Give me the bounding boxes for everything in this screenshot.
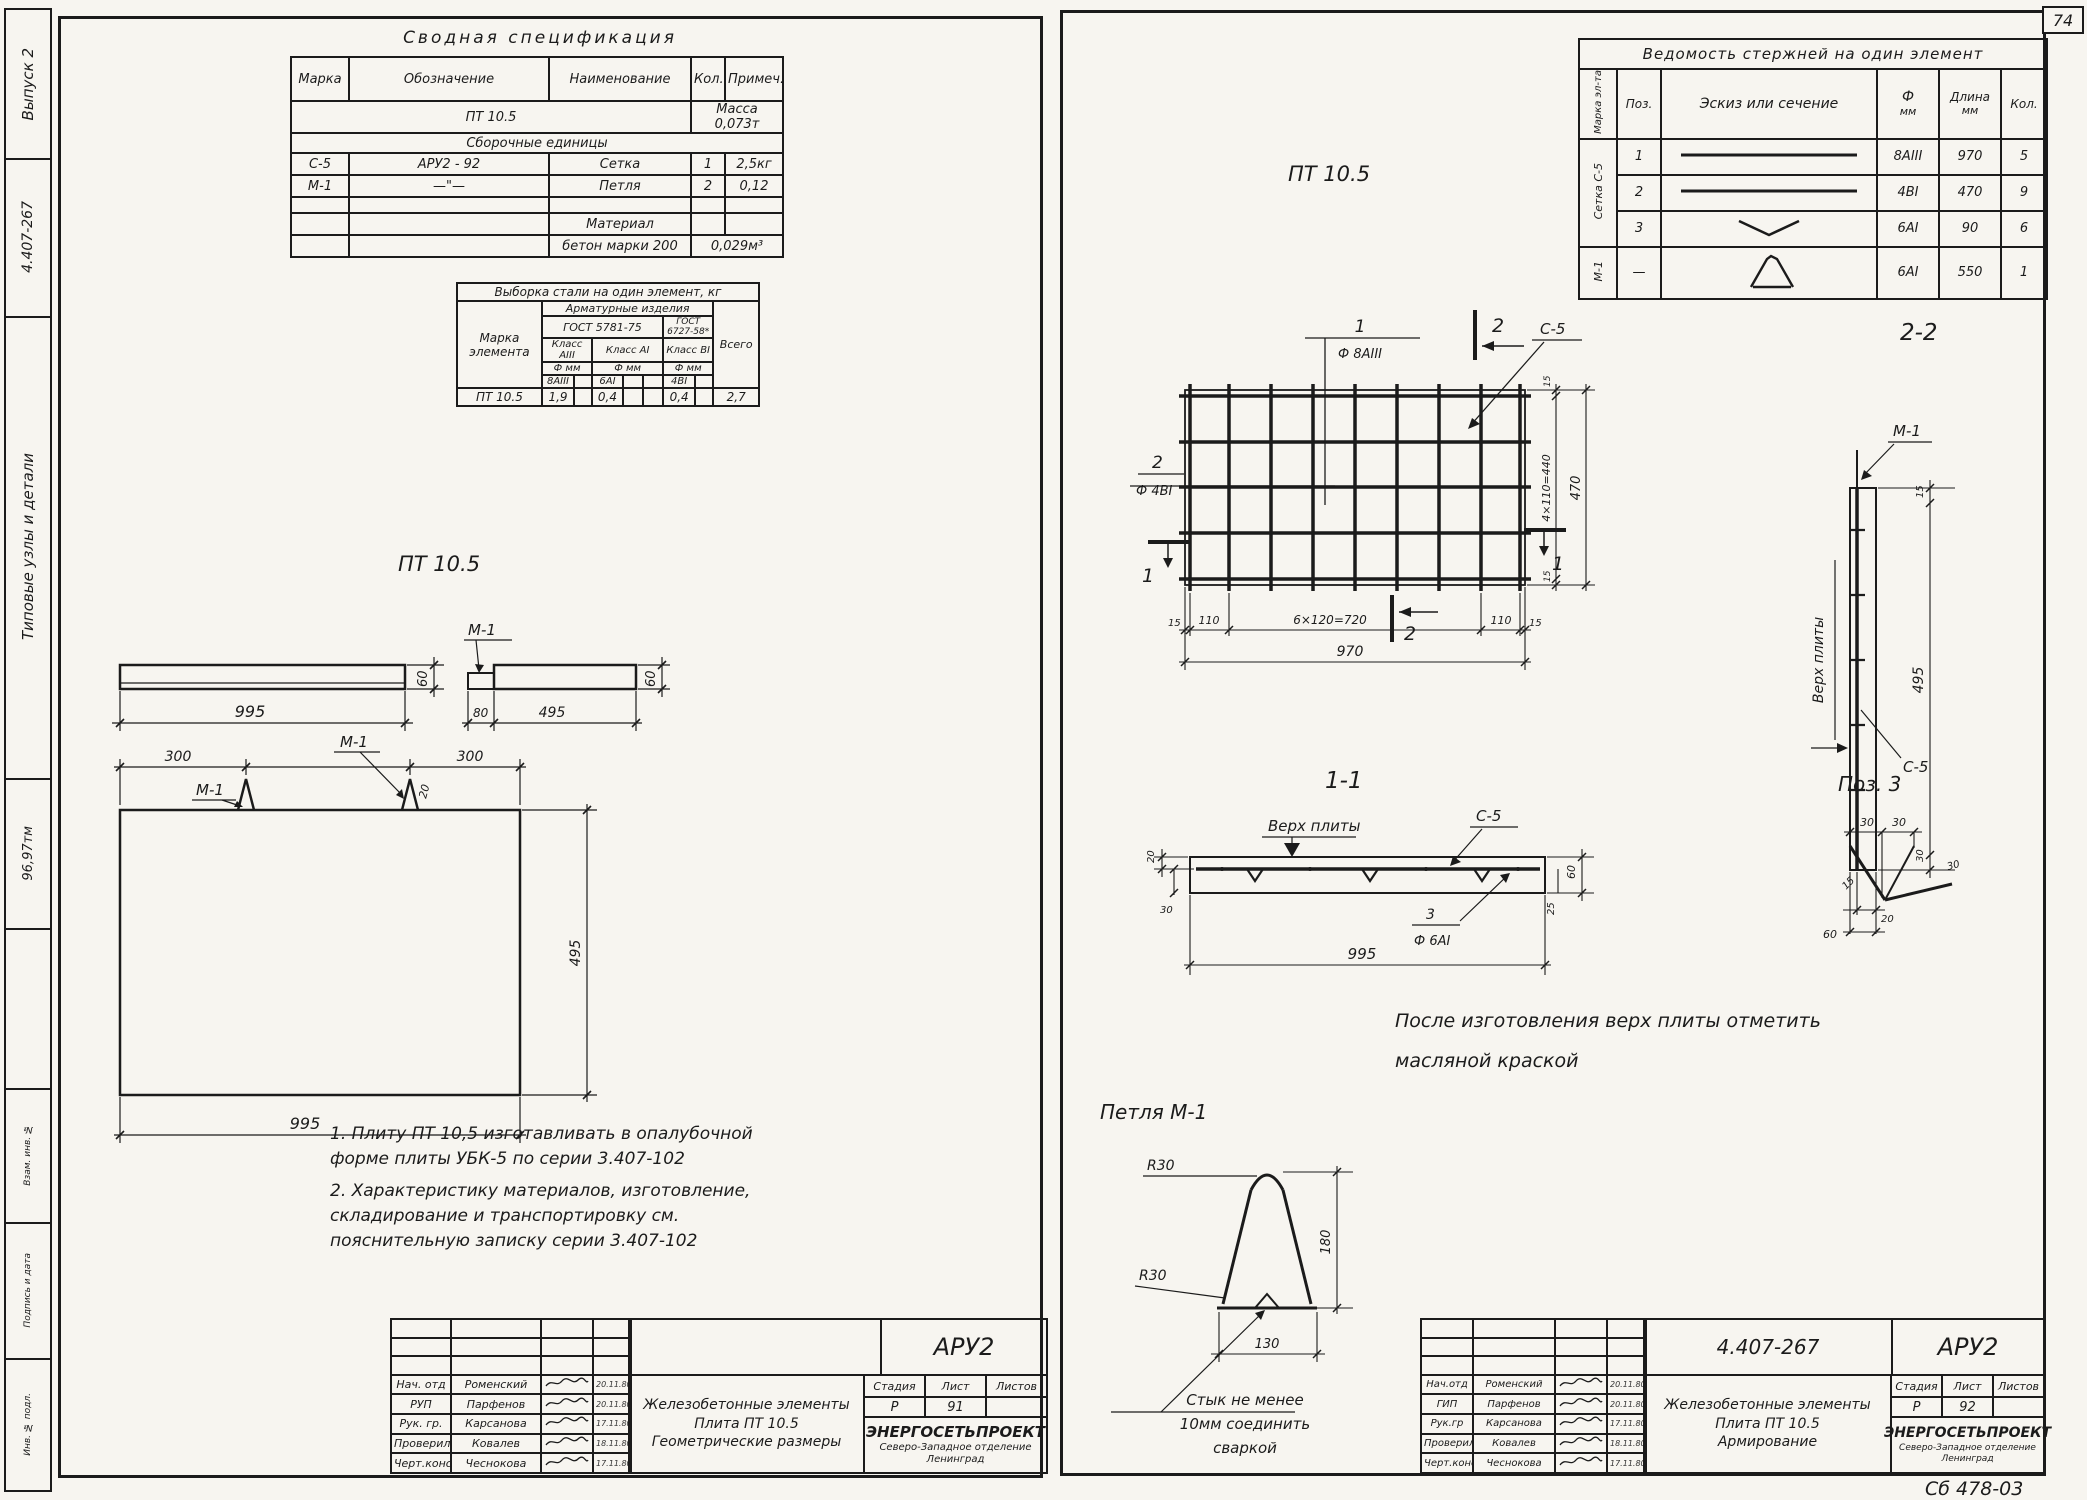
page-number: 74: [2053, 11, 2073, 30]
dim-label: 60: [416, 670, 431, 687]
weld-note-line-3: сваркой: [1125, 1436, 1365, 1460]
section-mark: 1: [1552, 553, 1564, 575]
notes: 1. Плиту ПТ 10,5 изготавливать в опалубо…: [330, 1122, 800, 1253]
staff-table: Нач.отдРоменский20.11.80 ГИППарфенов20.1…: [1420, 1318, 1647, 1474]
steel-gost: ГОСТ 5781-75: [542, 316, 663, 338]
title-line-2: Плита ПТ 10.5: [1715, 1415, 1819, 1434]
spec-header: Кол.: [691, 57, 725, 101]
steel-total-header: Всего: [713, 301, 759, 388]
sheet-value: 92: [1941, 1396, 1994, 1418]
dim-label: 130: [1255, 1337, 1280, 1352]
org-branch: Северо-Западное отделение: [879, 1442, 1031, 1455]
dim-label: 60: [644, 670, 659, 687]
dim-label: 30: [1860, 816, 1874, 829]
rods-qty: 6: [2001, 211, 2047, 247]
date: 17.11.80: [1607, 1414, 1646, 1434]
rod-sketch-line: [1661, 139, 1877, 175]
sheet-value: 91: [924, 1396, 987, 1418]
name: Ковалев: [451, 1434, 541, 1454]
top-of-slab-label: Верх плиты: [1268, 817, 1361, 835]
name: Карсанова: [451, 1414, 541, 1434]
spec-cell: АРУ2 - 92: [349, 153, 549, 175]
margin-issue: Выпуск 2: [19, 48, 37, 120]
radius-label: R30: [1147, 1158, 1175, 1174]
date: 17.11.80: [1607, 1453, 1646, 1473]
weld-note: Стык не менее 10мм соединить сваркой: [1125, 1388, 1365, 1460]
section-2-2-heading: 2-2: [1900, 320, 1938, 346]
loop-ref-label: М-1: [468, 621, 496, 639]
steel-dia: 6АI: [592, 375, 622, 388]
dim-label: 30: [1892, 816, 1906, 829]
weld-note-line-1: Стык не менее: [1125, 1388, 1365, 1412]
pos-label: 3: [1426, 907, 1435, 923]
spec-table-title: Сводная спецификация: [300, 28, 780, 48]
dim-label: 15: [1529, 618, 1542, 629]
rods-len: 970: [1939, 139, 2001, 175]
org-name: ЭНЕРГОСЕТЬПРОЕКТ: [1884, 1425, 2051, 1443]
dim-label: 6×120=720: [1293, 613, 1367, 627]
role: ГИП: [1421, 1394, 1473, 1414]
spec-cell: 1: [691, 153, 725, 175]
org-cell: ЭНЕРГОСЕТЬПРОЕКТ Северо-Западное отделен…: [863, 1416, 1048, 1474]
margin-title: Типовые узлы и детали: [19, 453, 37, 640]
role: Рук.гр: [1421, 1414, 1473, 1434]
dim-label: 300: [165, 749, 192, 765]
weld-note-line-2: 10мм соединить: [1125, 1412, 1365, 1436]
name: Чеснокова: [451, 1453, 541, 1473]
signature-scribble: [541, 1453, 593, 1473]
rods-pos: 2: [1617, 175, 1661, 211]
steel-val: 2,7: [713, 388, 759, 406]
spec-header: Наименование: [549, 57, 691, 101]
doc-code: 4.407-267: [1717, 1335, 1820, 1359]
drawing-title-cell: Железобетонные элементы Плита ПТ 10.5 Ге…: [628, 1374, 865, 1474]
dim-label: 495: [568, 940, 584, 967]
spec-mass: Масса 0,073т: [691, 101, 783, 133]
steel-group: Арматурные изделия: [542, 301, 714, 316]
radius-label: R30: [1139, 1268, 1167, 1284]
steel-dia: 8АIII: [542, 375, 574, 388]
spec-cell: 2: [691, 175, 725, 197]
rods-group: Сетка С-5: [1579, 139, 1617, 247]
dim-label: 995: [235, 702, 266, 721]
spec-cell: —"—: [349, 175, 549, 197]
dim-label: 180: [1319, 1230, 1334, 1255]
date: 20.11.80: [593, 1394, 631, 1414]
signature-scribble: [1555, 1375, 1607, 1395]
mesh-mark-label: С-5: [1540, 320, 1565, 338]
org-name: ЭНЕРГОСЕТЬПРОЕКТ: [866, 1423, 1045, 1442]
org-cell: ЭНЕРГОСЕТЬПРОЕКТ Северо-Западное отделен…: [1890, 1416, 2045, 1474]
steel-title: Выборка стали на один элемент, кг: [457, 283, 759, 301]
steel-mark-header: Марка элемента: [457, 301, 542, 388]
rods-header-pos: Поз.: [1617, 69, 1661, 139]
dim-label: 20: [1146, 850, 1157, 863]
dim-label: 15: [1915, 485, 1926, 498]
dim-label: 995: [290, 1114, 321, 1133]
spec-cell: М-1: [291, 175, 349, 197]
spec-cell: С-5: [291, 153, 349, 175]
name: Парфенов: [1473, 1394, 1555, 1414]
loop-ref-label: М-1: [340, 733, 368, 751]
marking-note-line-1: После изготовления верх плиты отметить: [1395, 1008, 2005, 1036]
name: Ковалев: [1473, 1434, 1555, 1454]
steel-val: 1,9: [542, 388, 574, 406]
dim-label: 80: [473, 706, 489, 720]
dim-label: 25: [1546, 902, 1557, 915]
drawing-sheet: Выпуск 2 4.407-267 Типовые узлы и детали…: [0, 0, 2087, 1500]
org-branch: Северо-Западное отделение: [1899, 1443, 2036, 1454]
role: Нач.отд: [1421, 1375, 1473, 1395]
margin-code: 96,97тм: [21, 826, 36, 881]
name: Чеснокова: [1473, 1453, 1555, 1473]
title-line-3: Армирование: [1718, 1433, 1817, 1452]
stage-value: Р: [1890, 1396, 1943, 1418]
steel-dia-label: Ф мм: [542, 362, 592, 375]
dim-label: 970: [1337, 644, 1364, 660]
rods-header-mark: Марка эл-та: [1579, 69, 1617, 139]
callout-pos: 1: [1355, 317, 1366, 337]
spec-cell: 0,12: [725, 175, 783, 197]
pos3-drawing: 30 30 15 30: [1800, 808, 2030, 933]
margin-box-top: Взам. инв. №: [23, 1124, 33, 1186]
rods-qty: 1: [2001, 247, 2047, 299]
loop-ref-label: М-1: [1893, 422, 1921, 440]
pos3-heading: Поз. 3: [1838, 772, 1901, 796]
steel-class: Класс АI: [592, 338, 663, 362]
callout-pos: 2: [1152, 453, 1163, 473]
sheet-header: Лист: [924, 1374, 987, 1398]
staff-table: Нач. отдРоменский20.11.80 РУППарфенов20.…: [390, 1318, 632, 1474]
section-mark: 2: [1492, 315, 1504, 337]
spec-section: Сборочные единицы: [291, 133, 783, 153]
dim-label: 60: [1565, 865, 1578, 879]
dim-label: 15: [1168, 618, 1181, 629]
doc-mark: АРУ2: [934, 1333, 995, 1361]
margin-box-bot: Инв. № подл.: [23, 1393, 33, 1456]
steel-dia-label: Ф мм: [592, 362, 663, 375]
date: 20.11.80: [1607, 1394, 1646, 1414]
title-line-1: Железобетонные элементы: [643, 1396, 849, 1415]
name: Карсанова: [1473, 1414, 1555, 1434]
dim-label: 110: [1491, 614, 1512, 627]
rods-table: Ведомость стержней на один элемент Марка…: [1578, 38, 2048, 300]
name: Роменский: [451, 1375, 541, 1395]
rod-sketch-vee: [1661, 211, 1877, 247]
name: Парфенов: [451, 1394, 541, 1414]
sheet-header: Лист: [1941, 1374, 1994, 1398]
date: 17.11.80: [593, 1414, 631, 1434]
footer-handwritten-mark: Сб 478-03: [1925, 1478, 2023, 1500]
spec-header: Примеч.: [725, 57, 783, 101]
section-mark: 2: [1404, 623, 1416, 645]
spec-cell: 2,5кг: [725, 153, 783, 175]
sheets-header: Листов: [985, 1374, 1048, 1398]
steel-row-mark: ПТ 10.5: [457, 388, 542, 406]
mesh-plan-drawing: 1 Ф 8АIII 2 Ф 4ВI 2 2 1 1 С-5: [1120, 290, 1690, 730]
role: Черт.конс: [391, 1453, 451, 1473]
steel-class: Класс АIII: [542, 338, 592, 362]
role: Нач. отд: [391, 1375, 451, 1395]
top-of-slab-label: Верх плиты: [1811, 617, 1827, 703]
dim-label: 30: [1946, 859, 1961, 873]
signature-scribble: [541, 1414, 593, 1434]
signature-scribble: [541, 1394, 593, 1414]
loop-ref-label: М-1: [196, 781, 224, 799]
spec-header: Обозначение: [349, 57, 549, 101]
spec-material-qty: 0,029м³: [691, 235, 783, 257]
title-block-right: Нач.отдРоменский20.11.80 ГИППарфенов20.1…: [1420, 1318, 2045, 1474]
rods-dia: 6АI: [1877, 211, 1939, 247]
margin-strip: Выпуск 2 4.407-267 Типовые узлы и детали…: [4, 8, 52, 1492]
rods-len: 470: [1939, 175, 2001, 211]
mesh-mark-label: С-5: [1476, 807, 1501, 825]
spec-material-name: бетон марки 200: [549, 235, 691, 257]
rods-qty: 5: [2001, 139, 2047, 175]
stage-value: Р: [863, 1396, 926, 1418]
dim-label: 995: [1348, 945, 1377, 963]
page-number-box: 74: [2042, 6, 2084, 34]
rods-header-dia: Фмм: [1877, 69, 1939, 139]
dim-label: 4×110=440: [1540, 454, 1553, 521]
title-block-left: Нач. отдРоменский20.11.80 РУППарфенов20.…: [390, 1318, 1048, 1474]
steel-gost: ГОСТ 6727-58*: [663, 316, 713, 338]
spec-table: Марка Обозначение Наименование Кол. Прим…: [290, 56, 784, 258]
steel-dia: 4ВI: [663, 375, 695, 388]
margin-box-mid: Подпись и дата: [23, 1253, 33, 1328]
role: РУП: [391, 1394, 451, 1414]
rod-sketch-loop: [1661, 247, 1877, 299]
rods-header-qty: Кол.: [2001, 69, 2047, 139]
note-2: 2. Характеристику материалов, изготовлен…: [330, 1179, 800, 1253]
rods-dia: 4ВI: [1877, 175, 1939, 211]
rods-title: Ведомость стержней на один элемент: [1579, 39, 2047, 69]
doc-mark: АРУ2: [1938, 1333, 1999, 1361]
role: Рук. гр.: [391, 1414, 451, 1434]
mesh-mark-label: С-5: [1903, 758, 1928, 776]
role: Проверил: [391, 1434, 451, 1454]
marking-note: После изготовления верх плиты отметить м…: [1395, 1008, 2005, 1075]
stage-header: Стадия: [1890, 1374, 1943, 1398]
dim-label: 495: [539, 705, 566, 721]
dim-label: 15: [1543, 570, 1553, 582]
doc-code-cell: [628, 1318, 882, 1376]
steel-val: 0,4: [663, 388, 695, 406]
org-city: Ленинград: [927, 1454, 985, 1467]
role: Проверил: [1421, 1434, 1473, 1454]
rods-dia: 8АIII: [1877, 139, 1939, 175]
sheets-header: Листов: [1992, 1374, 2045, 1398]
title-line-2: Плита ПТ 10.5: [694, 1415, 798, 1434]
signature-scribble: [1555, 1414, 1607, 1434]
dim-label: 15: [1543, 375, 1553, 387]
pos-dia-label: Ф 6АI: [1414, 934, 1450, 949]
loop-heading: Петля М-1: [1100, 1100, 1207, 1124]
margin-series: 4.407-267: [20, 201, 36, 273]
title-line-1: Железобетонные элементы: [1664, 1396, 1870, 1415]
rods-header-sketch: Эскиз или сечение: [1661, 69, 1877, 139]
rods-qty: 9: [2001, 175, 2047, 211]
rods-len: 550: [1939, 247, 2001, 299]
date: 18.11.80: [593, 1434, 631, 1454]
steel-class: Класс ВI: [663, 338, 713, 362]
mesh-heading: ПТ 10.5: [1288, 162, 1370, 186]
dim-label: 15: [1840, 875, 1857, 892]
signature-scribble: [541, 1375, 593, 1395]
steel-dia-label: Ф мм: [663, 362, 713, 375]
name: Роменский: [1473, 1375, 1555, 1395]
dim-label: 30: [1160, 905, 1173, 916]
sheets-value: [1992, 1396, 2045, 1418]
dim-label: 20: [416, 783, 432, 800]
marking-note-line-2: масляной краской: [1395, 1048, 2005, 1076]
date: 20.11.80: [593, 1375, 631, 1395]
spec-header: Марка: [291, 57, 349, 101]
role: Черт.конс: [1421, 1453, 1473, 1473]
signature-scribble: [1555, 1453, 1607, 1473]
note-1: 1. Плиту ПТ 10,5 изготавливать в опалубо…: [330, 1122, 800, 1171]
org-city: Ленинград: [1941, 1454, 1993, 1465]
spec-item: ПТ 10.5: [291, 101, 691, 133]
section-1-1-heading: 1-1: [1325, 768, 1363, 794]
section-mark: 1: [1142, 565, 1154, 587]
signature-scribble: [1555, 1434, 1607, 1454]
spec-material-label: Материал: [549, 213, 691, 235]
dim-label: 495: [1911, 667, 1927, 694]
rod-sketch-line: [1661, 175, 1877, 211]
signature-scribble: [1555, 1394, 1607, 1414]
doc-mark-cell: АРУ2: [880, 1318, 1048, 1376]
dim-label: 300: [457, 749, 484, 765]
steel-val: 0,4: [592, 388, 622, 406]
rods-len: 90: [1939, 211, 2001, 247]
spec-cell: Сетка: [549, 153, 691, 175]
doc-code-cell: 4.407-267: [1643, 1318, 1893, 1376]
signature-scribble: [541, 1434, 593, 1454]
date: 17.11.80: [593, 1453, 631, 1473]
rods-dia: 6АI: [1877, 247, 1939, 299]
rods-pos: 3: [1617, 211, 1661, 247]
rods-pos: 1: [1617, 139, 1661, 175]
date: 20.11.80: [1607, 1375, 1646, 1395]
date: 18.11.80: [1607, 1434, 1646, 1454]
spec-cell: Петля: [549, 175, 691, 197]
divider: [6, 928, 50, 930]
callout-dia: Ф 8АIII: [1338, 347, 1382, 362]
geometry-heading: ПТ 10.5: [398, 552, 480, 576]
drawing-title-cell: Железобетонные элементы Плита ПТ 10.5 Ар…: [1643, 1374, 1892, 1474]
steel-table: Выборка стали на один элемент, кг Марка …: [456, 282, 760, 407]
dim-label: 470: [1569, 476, 1584, 501]
doc-mark-cell: АРУ2: [1891, 1318, 2045, 1376]
dim-label: 110: [1199, 614, 1220, 627]
title-line-3: Геометрические размеры: [652, 1433, 842, 1452]
stage-header: Стадия: [863, 1374, 926, 1398]
rods-header-len: Длинамм: [1939, 69, 2001, 139]
sheets-value: [985, 1396, 1048, 1418]
